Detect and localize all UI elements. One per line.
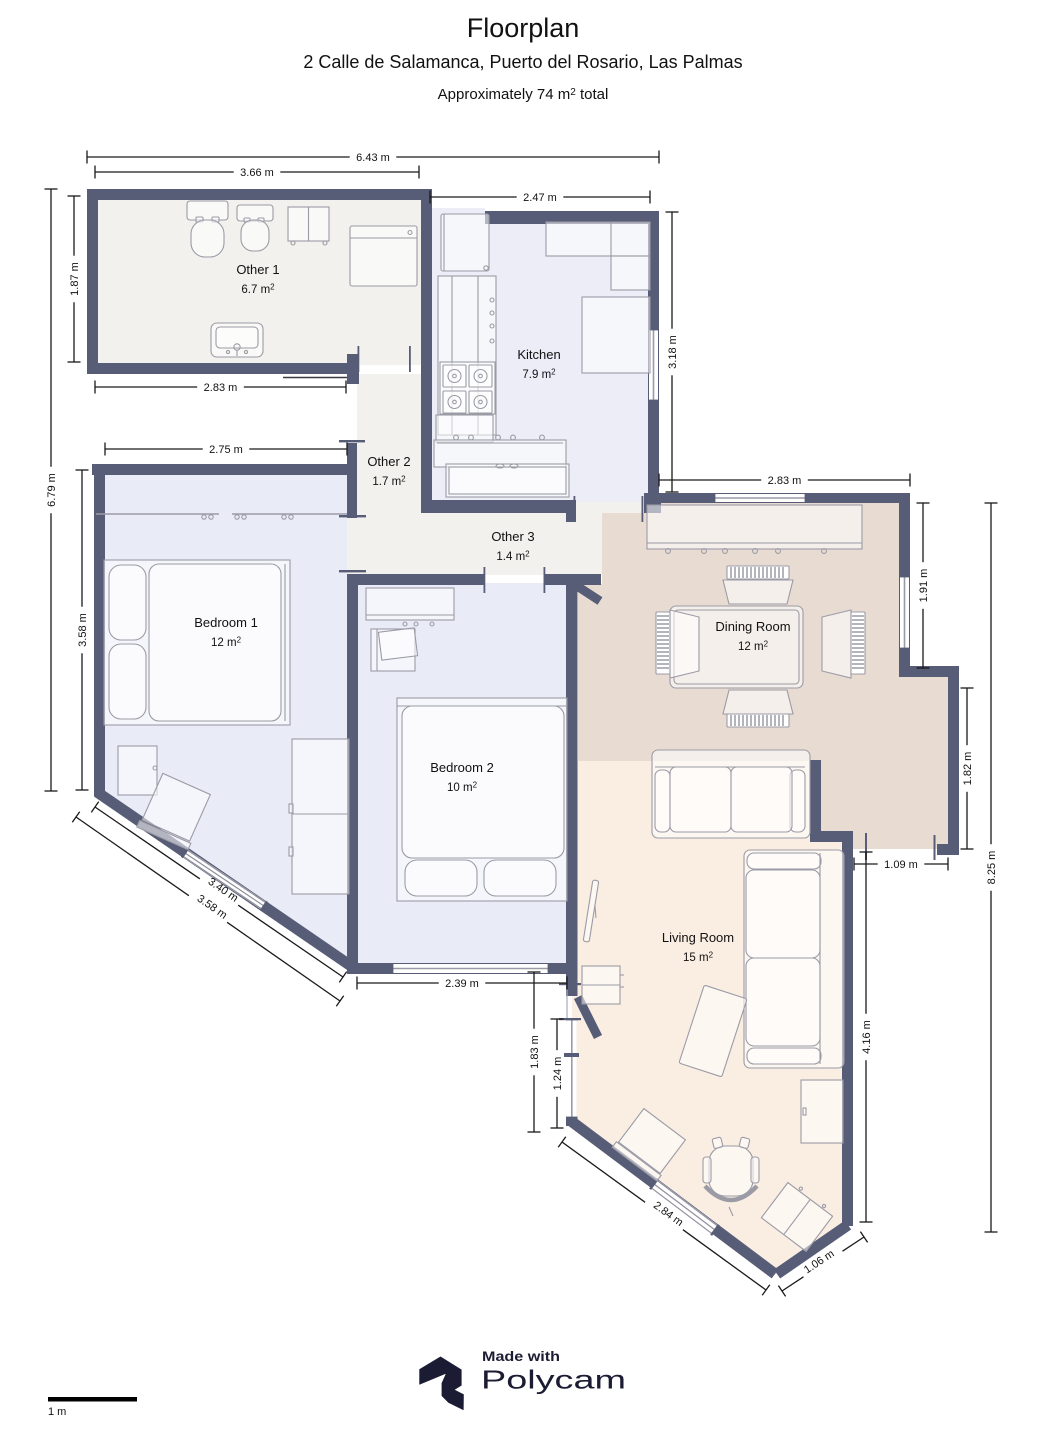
svg-text:2.83 m: 2.83 m: [768, 475, 802, 487]
svg-text:1.7 m2: 1.7 m2: [372, 475, 406, 489]
svg-text:8.25 m: 8.25 m: [986, 851, 998, 885]
svg-text:3.18 m: 3.18 m: [667, 335, 679, 369]
svg-text:Bedroom 1: Bedroom 1: [194, 615, 258, 630]
svg-text:2.83 m: 2.83 m: [204, 382, 238, 394]
svg-text:6.7 m2: 6.7 m2: [241, 283, 275, 297]
svg-text:2.75 m: 2.75 m: [209, 444, 243, 456]
svg-text:Other 1: Other 1: [236, 262, 279, 277]
svg-text:6.79 m: 6.79 m: [46, 473, 58, 507]
svg-text:4.16 m: 4.16 m: [861, 1020, 873, 1054]
svg-text:Living Room: Living Room: [662, 930, 734, 945]
svg-text:3.58 m: 3.58 m: [77, 613, 89, 647]
svg-text:1.4 m2: 1.4 m2: [496, 550, 530, 564]
svg-text:Polycam: Polycam: [481, 1365, 626, 1395]
svg-text:1.09 m: 1.09 m: [884, 859, 918, 871]
svg-text:Kitchen: Kitchen: [517, 347, 560, 362]
svg-text:2 Calle de Salamanca, Puerto d: 2 Calle de Salamanca, Puerto del Rosario…: [303, 52, 742, 72]
svg-text:1 m: 1 m: [48, 1406, 66, 1418]
svg-text:1.82 m: 1.82 m: [962, 752, 974, 786]
svg-text:7.9 m2: 7.9 m2: [522, 368, 556, 382]
svg-text:1.87 m: 1.87 m: [69, 262, 81, 296]
svg-text:1.24 m: 1.24 m: [552, 1057, 564, 1091]
svg-text:Bedroom 2: Bedroom 2: [430, 760, 494, 775]
svg-text:6.43 m: 6.43 m: [356, 152, 390, 164]
svg-text:2.39 m: 2.39 m: [445, 978, 479, 990]
svg-text:2.47 m: 2.47 m: [523, 192, 557, 204]
svg-text:3.66 m: 3.66 m: [240, 167, 274, 179]
svg-text:Approximately 74 m2 total: Approximately 74 m2 total: [438, 86, 609, 103]
svg-text:Floorplan: Floorplan: [467, 13, 580, 43]
svg-text:Other 3: Other 3: [491, 529, 534, 544]
svg-text:1.83 m: 1.83 m: [529, 1035, 541, 1069]
svg-text:Dining Room: Dining Room: [715, 619, 790, 634]
svg-text:Other 2: Other 2: [367, 454, 410, 469]
svg-text:1.91 m: 1.91 m: [918, 569, 930, 603]
svg-text:Made with: Made with: [482, 1349, 560, 1364]
